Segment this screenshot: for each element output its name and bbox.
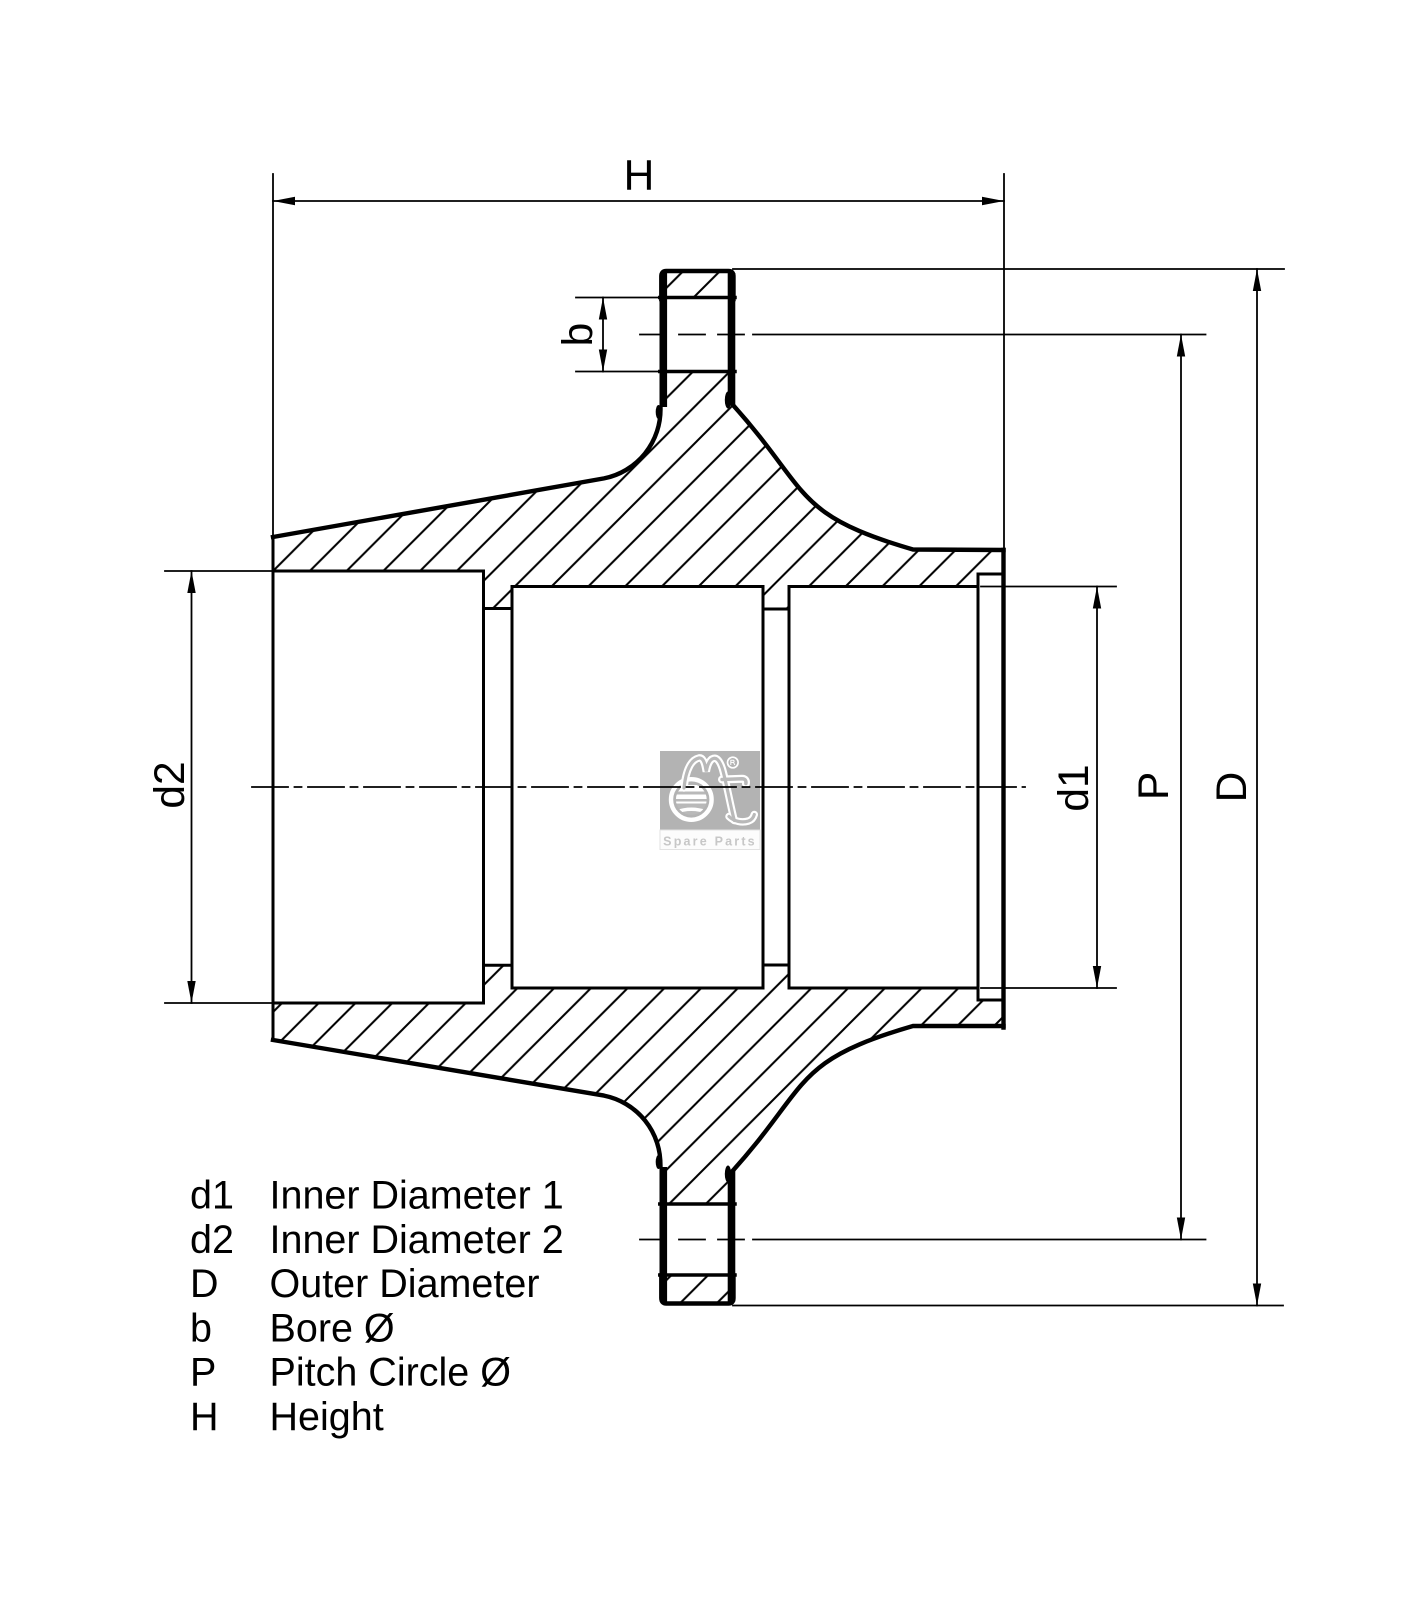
svg-text:d2: d2 bbox=[147, 761, 194, 808]
svg-text:D: D bbox=[190, 1262, 219, 1306]
svg-text:D: D bbox=[1209, 772, 1256, 803]
svg-text:Inner Diameter 1: Inner Diameter 1 bbox=[270, 1174, 564, 1218]
svg-text:Bore Ø: Bore Ø bbox=[270, 1306, 395, 1350]
svg-text:H: H bbox=[190, 1395, 219, 1439]
svg-text:b: b bbox=[555, 323, 602, 347]
svg-text:P: P bbox=[1131, 772, 1178, 800]
svg-text:P: P bbox=[190, 1351, 216, 1395]
svg-text:Inner Diameter 2: Inner Diameter 2 bbox=[270, 1218, 564, 1262]
svg-text:Pitch Circle Ø: Pitch Circle Ø bbox=[270, 1351, 511, 1395]
svg-text:d1: d1 bbox=[1051, 764, 1098, 811]
svg-text:Outer Diameter: Outer Diameter bbox=[270, 1262, 540, 1306]
svg-text:Spare Parts: Spare Parts bbox=[663, 835, 757, 849]
svg-text:d1: d1 bbox=[190, 1174, 234, 1218]
svg-text:Height: Height bbox=[270, 1395, 384, 1439]
svg-text:H: H bbox=[624, 153, 655, 200]
svg-text:b: b bbox=[190, 1306, 212, 1350]
svg-text:d2: d2 bbox=[190, 1218, 234, 1262]
